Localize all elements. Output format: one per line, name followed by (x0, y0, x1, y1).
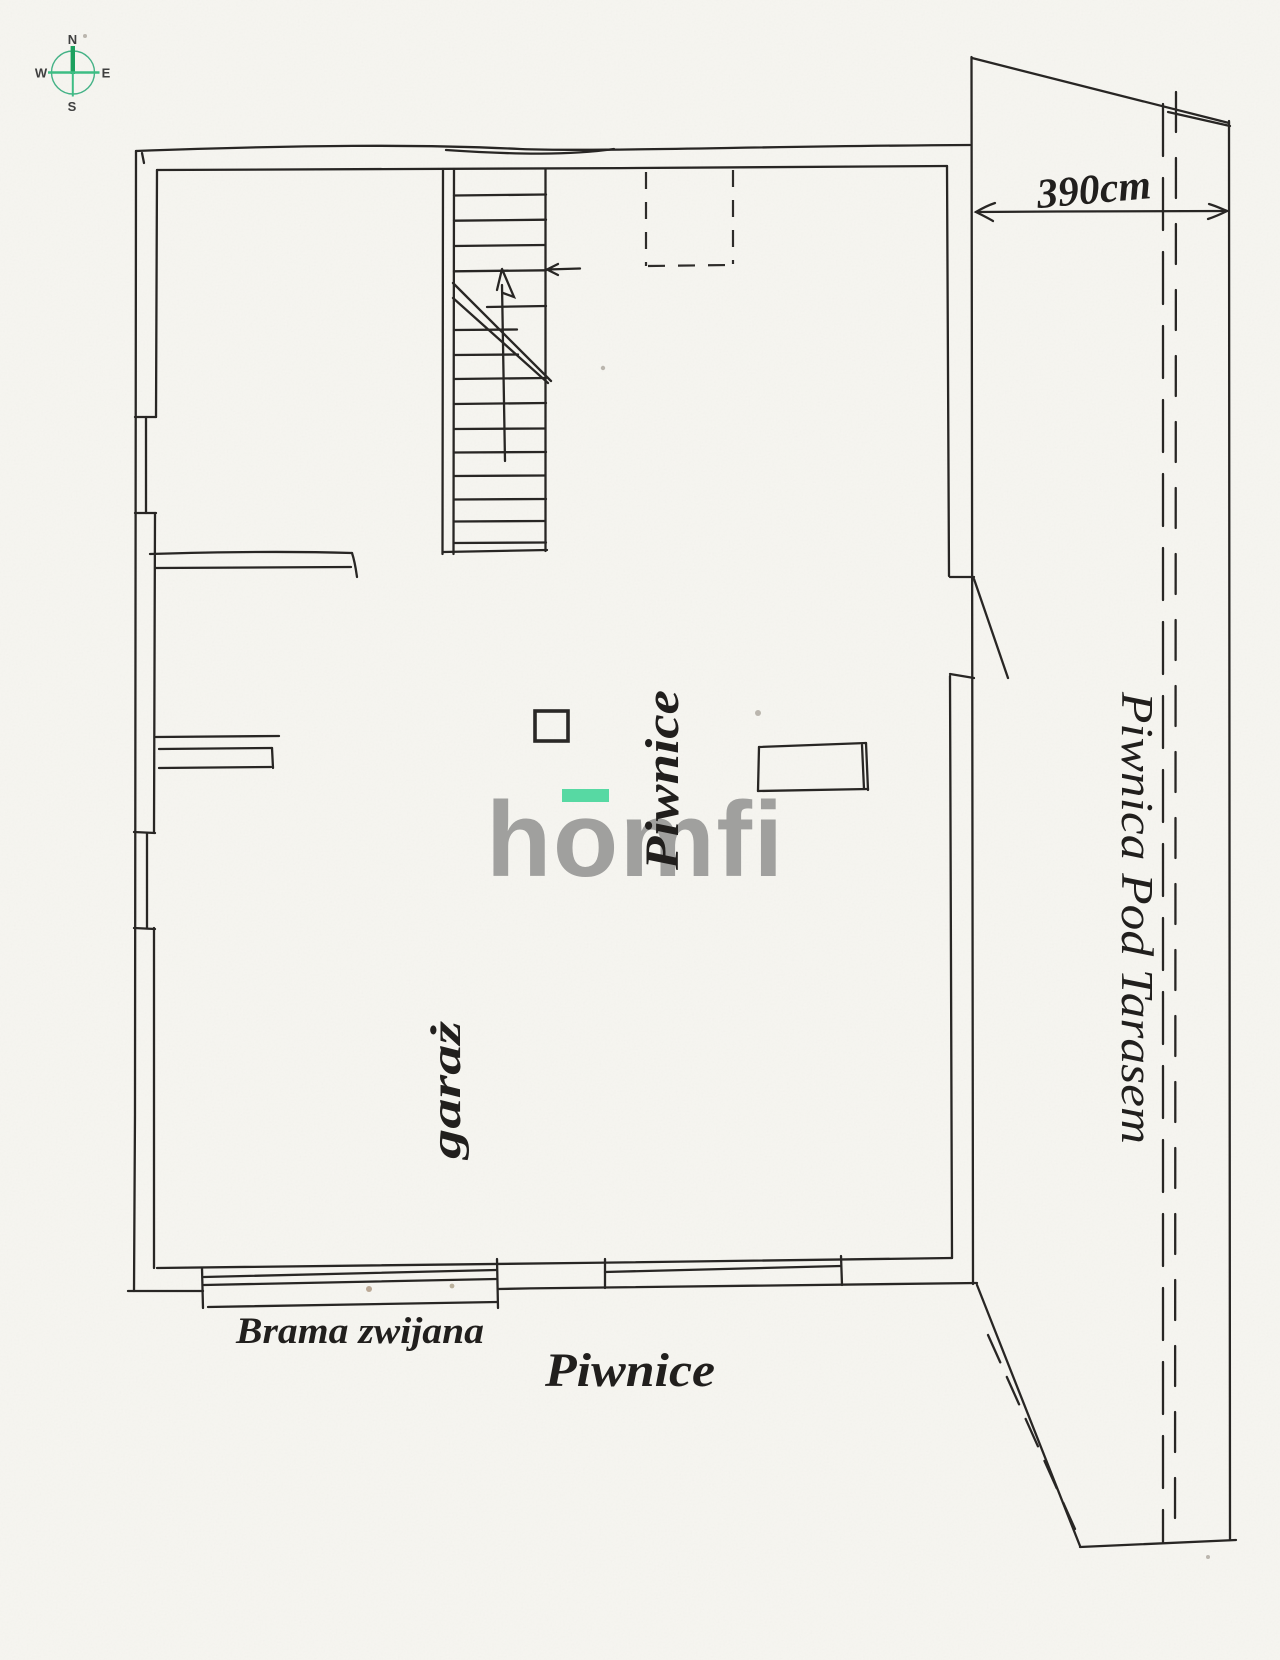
svg-text:S: S (68, 99, 77, 114)
svg-text:Piwnice: Piwnice (544, 1344, 715, 1397)
svg-text:Brama zwijana: Brama zwijana (235, 1311, 484, 1352)
svg-text:Piwnica Pod Tarasem: Piwnica Pod Tarasem (1112, 691, 1163, 1144)
svg-text:garaż: garaż (424, 1020, 470, 1160)
svg-text:E: E (102, 66, 111, 81)
svg-text:N: N (68, 32, 77, 47)
svg-text:W: W (35, 66, 48, 81)
svg-text:Piwnice: Piwnice (636, 690, 689, 871)
